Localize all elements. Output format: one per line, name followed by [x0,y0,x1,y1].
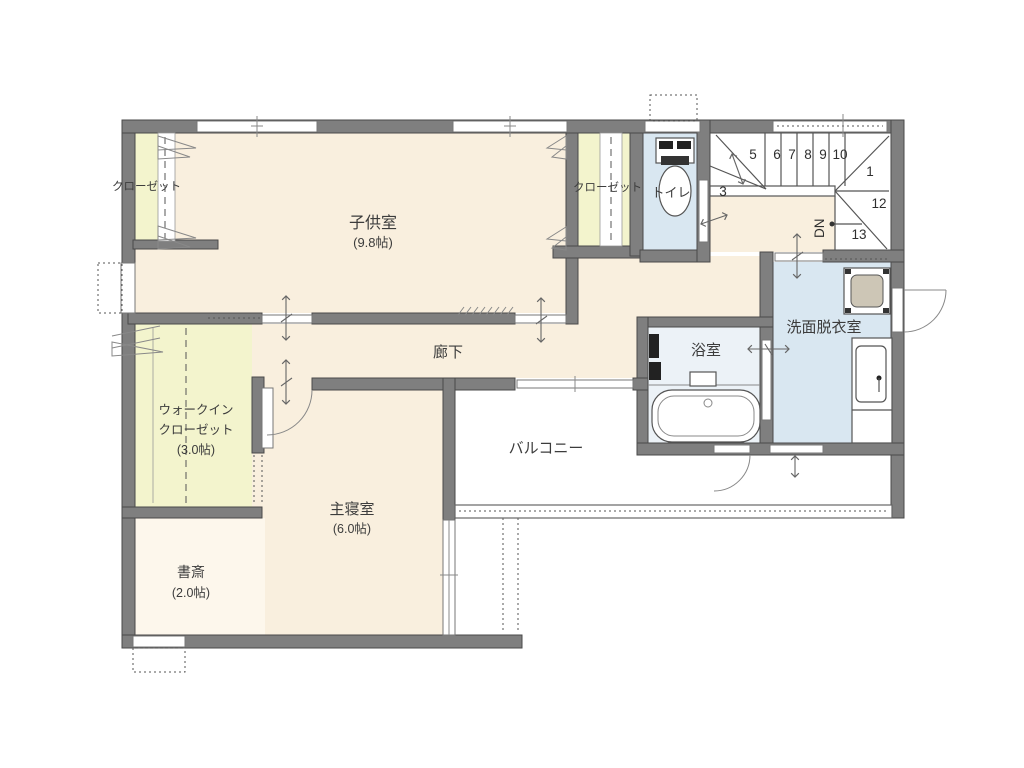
dotted-box-left-window [98,263,122,313]
label-toilet: トイレ [651,185,690,200]
label-wic-line1: ウォークイン [158,403,233,417]
door-washroom-balcony [770,445,823,453]
window-bottom [133,636,185,647]
label-hallway: 廊下 [433,344,463,361]
door-bath-balcony [714,445,750,453]
door-toilet [699,180,708,242]
dotted-box-toilet-window [650,95,697,121]
stair-step-8: 8 [804,147,812,162]
washroom-exterior-door-arc [904,290,946,332]
dotted-box-bottom-window [133,648,185,672]
wall-bedroom-east [443,378,455,520]
label-children-room: 子供室 [349,214,397,232]
washing-machine-icon [844,268,890,314]
balcony-floor-east [637,455,891,505]
wall-hall-children-right [312,313,515,324]
window-top-right [773,121,887,132]
vanity-sink-icon [852,338,892,443]
label-wic-size: (3.0帖) [177,442,215,457]
wall-children-closet [566,133,578,324]
label-washroom: 洗面脱衣室 [786,319,861,336]
stair-step-6: 6 [773,147,781,162]
stair-step-11: 1 [866,164,874,179]
stair-step-5: 5 [749,147,757,162]
wall-toilet-left [630,133,643,256]
label-closet-middle: クローゼット [573,181,642,194]
label-balcony: バルコニー [509,440,584,457]
stair-step-3: 3 [719,184,727,199]
wall-bedroom-top [312,378,515,390]
stair-step-12: 12 [871,196,886,211]
wall-wic-bottom [122,507,262,518]
label-bathroom: 浴室 [691,342,721,359]
stair-step-10: 10 [832,147,847,162]
stair-landing-edge [710,186,835,196]
stair-step-9: 9 [819,147,827,162]
wall-hall-children-left [128,313,262,324]
stair-newel-dot [830,222,835,227]
wall-stairs-bottom [823,250,904,262]
wall-hall-balcony-stub [633,378,648,390]
label-master-bedroom: 主寝室 [329,500,374,518]
stair-step-7: 7 [788,147,796,162]
label-children-room-size: (9.8帖) [353,235,393,250]
stair-step-13: 13 [851,227,866,242]
label-closet-left: クローゼット [112,180,181,193]
wall-bathroom-top [637,317,773,327]
slider-washroom-entry [775,253,823,261]
stairs-floor-upper [710,133,893,192]
floor-plan-canvas: クローゼット 子供室 (9.8帖) クローゼット トイレ 廊下 ウォークイン ク… [0,0,1024,768]
slider-children-west [262,315,312,323]
toilet-fixture [656,138,694,216]
label-master-bedroom-size: (6.0帖) [333,521,371,536]
balcony-rail [455,505,892,518]
floor-plan: クローゼット 子供室 (9.8帖) クローゼット トイレ 廊下 ウォークイン ク… [0,0,1024,768]
label-wic-line2: クローゼット [158,423,233,437]
bedroom-door-leaf [262,388,273,448]
window-left [121,263,135,313]
wall-exterior-left [122,133,135,648]
label-study: 書斎 [177,564,205,580]
window-toilet [645,121,700,132]
stair-dn-label: DN [812,219,827,239]
label-study-size: (2.0帖) [172,585,210,600]
shower-fixture-icon [649,334,659,358]
door-washroom-exterior [892,288,903,332]
